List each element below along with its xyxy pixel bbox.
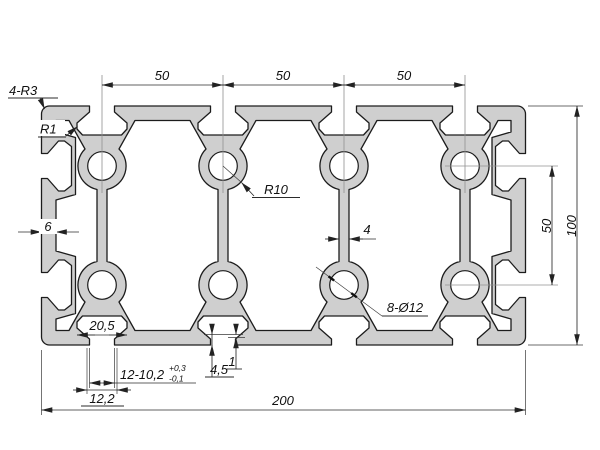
dim-lip-step-value: 1 xyxy=(228,354,235,369)
technical-drawing-canvas: 50 50 50 50 100 200 6 4 xyxy=(0,0,600,450)
label-lip-radius: R1 xyxy=(40,122,57,137)
dim-wall-value: 6 xyxy=(44,219,52,234)
hole-bottom-2 xyxy=(209,271,238,300)
hole-bottom-1 xyxy=(88,271,117,300)
dim-slot-spec-tol-plus: +0,3 xyxy=(169,363,186,373)
dim-slot-spec-tol-minus: -0,1 xyxy=(169,374,184,384)
dim-slot-cavity-value: 20,5 xyxy=(88,318,115,333)
dim-web-value: 4 xyxy=(363,222,370,237)
dim-lip-depth-value: 4,5 xyxy=(210,362,229,377)
dim-slot-spec-main: 12-10,2 xyxy=(120,367,165,382)
drawing-background xyxy=(0,0,600,450)
dim-hole-spacing-value: 50 xyxy=(539,218,554,233)
dim-slot-outer-value: 12,2 xyxy=(89,391,115,406)
dim-top-2-value: 50 xyxy=(276,68,291,83)
label-boss-radius: R10 xyxy=(264,182,289,197)
label-holes: 8-Ø12 xyxy=(387,300,424,315)
dim-top-1-value: 50 xyxy=(155,68,170,83)
dim-top-3-value: 50 xyxy=(397,68,412,83)
dim-top-spacings: 50 50 50 xyxy=(102,68,465,85)
label-corner-radius: 4-R3 xyxy=(9,83,38,98)
drawing-page: 50 50 50 50 100 200 6 4 xyxy=(0,0,600,450)
dim-width-value: 200 xyxy=(271,393,294,408)
dim-height-value: 100 xyxy=(564,214,579,236)
